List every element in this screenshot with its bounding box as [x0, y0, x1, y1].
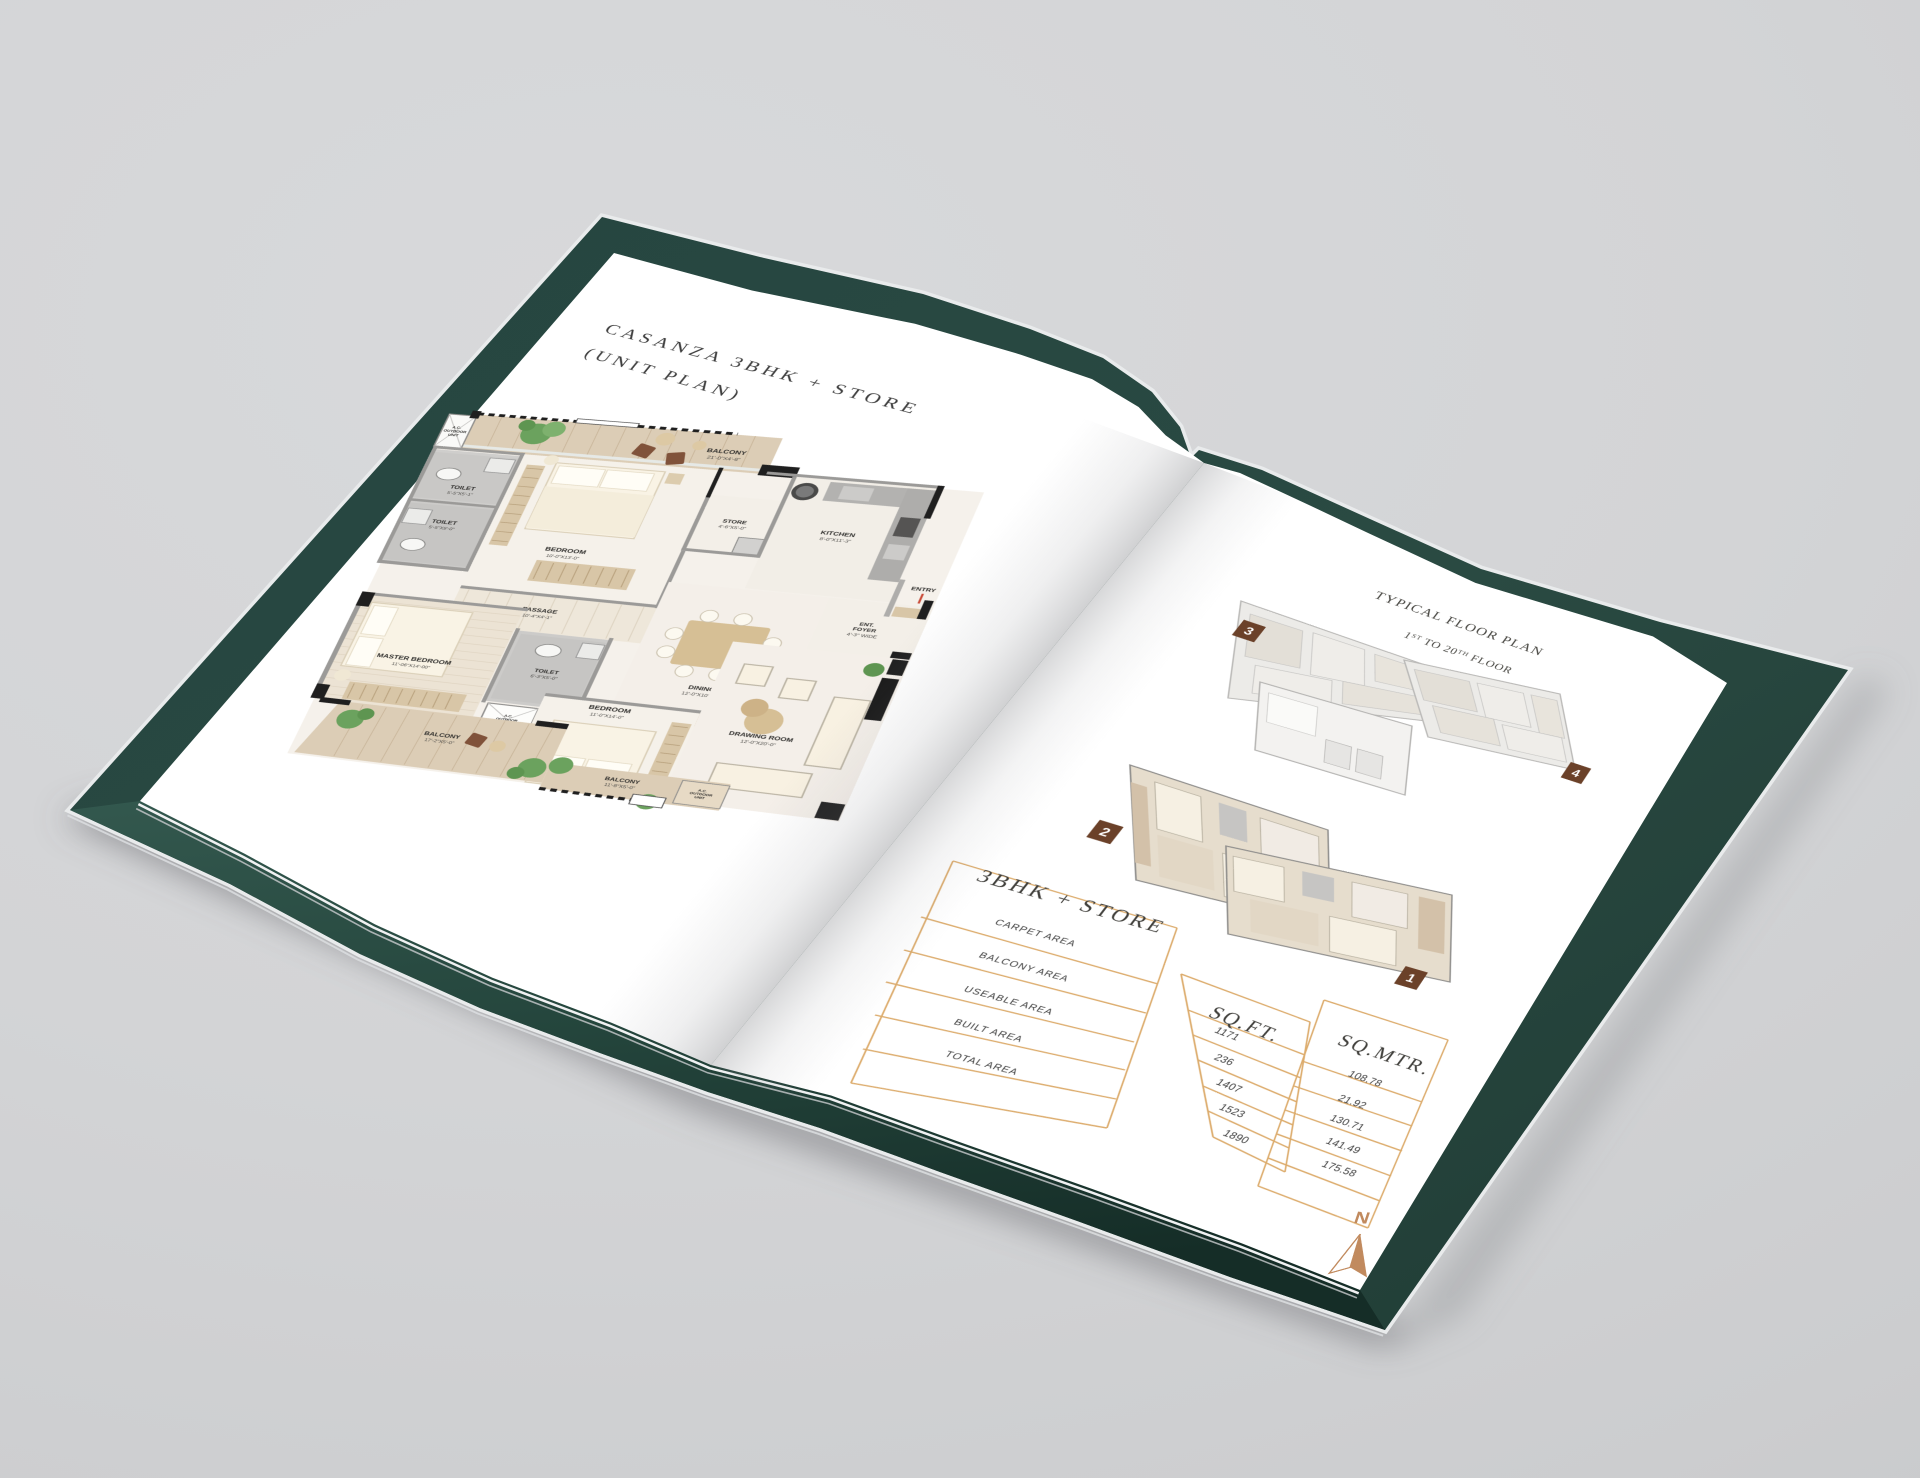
svg-text:CARPET AREA: CARPET AREA [992, 918, 1078, 949]
svg-text:21.92: 21.92 [1335, 1093, 1368, 1111]
svg-text:108.78: 108.78 [1346, 1069, 1385, 1089]
svg-text:USEABLE AREA: USEABLE AREA [961, 985, 1055, 1018]
svg-text:BUILT AREA: BUILT AREA [951, 1018, 1025, 1045]
svg-text:TOTAL AREA: TOTAL AREA [942, 1050, 1020, 1078]
svg-text:236: 236 [1211, 1052, 1236, 1068]
svg-text:A.C.: A.C. [452, 426, 463, 430]
svg-text:SQ.MTR.: SQ.MTR. [1333, 1030, 1437, 1079]
svg-text:130.71: 130.71 [1327, 1113, 1366, 1133]
